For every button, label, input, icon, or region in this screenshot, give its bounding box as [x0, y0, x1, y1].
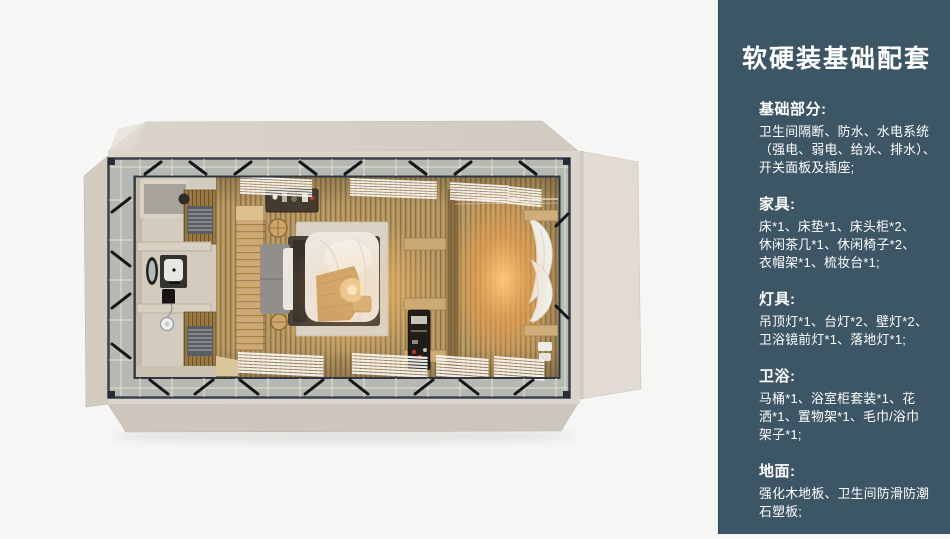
spec-sections: 基础部分: 卫生间隔断、防水、水电系统 （强电、弱电、给水、排水）、 开关面板及… [759, 98, 932, 521]
shell-top-flap [109, 121, 578, 151]
spec-section-heading: 家具: [759, 193, 932, 214]
spec-section: 卫浴: 马桶*1、浴室柜套装*1、花 洒*1、置物架*1、毛巾/浴巾 架子*1; [759, 365, 932, 444]
bathroom-wall-lamp [179, 194, 190, 205]
bloom-bed [280, 235, 420, 345]
spec-section-heading: 地面: [759, 460, 932, 481]
spec-section-body: 床*1、床垫*1、床头柜*2、 休闲茶几*1、休闲椅子*2、 衣帽架*1、梳妆台… [759, 218, 937, 272]
panel-title: 软硬装基础配套 [742, 44, 932, 74]
spec-section-body: 强化木地板、卫生间防滑防潮 石塑板; [759, 485, 937, 521]
shell-left-flap [84, 156, 108, 407]
room-top-view [0, 0, 718, 534]
spec-section-body: 吊顶灯*1、台灯*2、壁灯*2、 卫浴镜前灯*1、落地灯*1; [759, 313, 937, 349]
spec-section: 家具: 床*1、床垫*1、床头柜*2、 休闲茶几*1、休闲椅子*2、 衣帽架*1… [759, 193, 932, 272]
bloom-right [455, 198, 551, 358]
spec-section-heading: 卫浴: [759, 365, 932, 386]
wall-shelf-1 [404, 238, 446, 250]
spec-panel: 软硬装基础配套 基础部分: 卫生间隔断、防水、水电系统 （强电、弱电、给水、排水… [718, 0, 950, 534]
louver-panel-lower [187, 326, 213, 356]
louver-panel-upper [187, 206, 213, 234]
spec-section: 灯具: 吊顶灯*1、台灯*2、壁灯*2、 卫浴镜前灯*1、落地灯*1; [759, 288, 932, 349]
spec-section-body: 马桶*1、浴室柜套装*1、花 洒*1、置物架*1、毛巾/浴巾 架子*1; [759, 390, 937, 444]
vanity-stool [162, 289, 175, 305]
slide: 软硬装基础配套 基础部分: 卫生间隔断、防水、水电系统 （强电、弱电、给水、排水… [0, 0, 950, 534]
spec-section-heading: 基础部分: [759, 98, 932, 119]
folded-bedding [538, 342, 552, 351]
spec-section: 地面: 强化木地板、卫生间防滑防潮 石塑板; [759, 460, 932, 521]
spec-section-heading: 灯具: [759, 288, 932, 309]
floorplan-render [0, 0, 718, 534]
spec-section-body: 卫生间隔断、防水、水电系统 （强电、弱电、给水、排水）、 开关面板及插座; [759, 123, 937, 177]
shell-bottom-flap [108, 403, 578, 432]
vanity-sink [160, 255, 187, 288]
spec-section: 基础部分: 卫生间隔断、防水、水电系统 （强电、弱电、给水、排水）、 开关面板及… [759, 98, 932, 177]
bathroom-shelf-1 [137, 242, 211, 251]
shell-right-flap [580, 151, 641, 399]
